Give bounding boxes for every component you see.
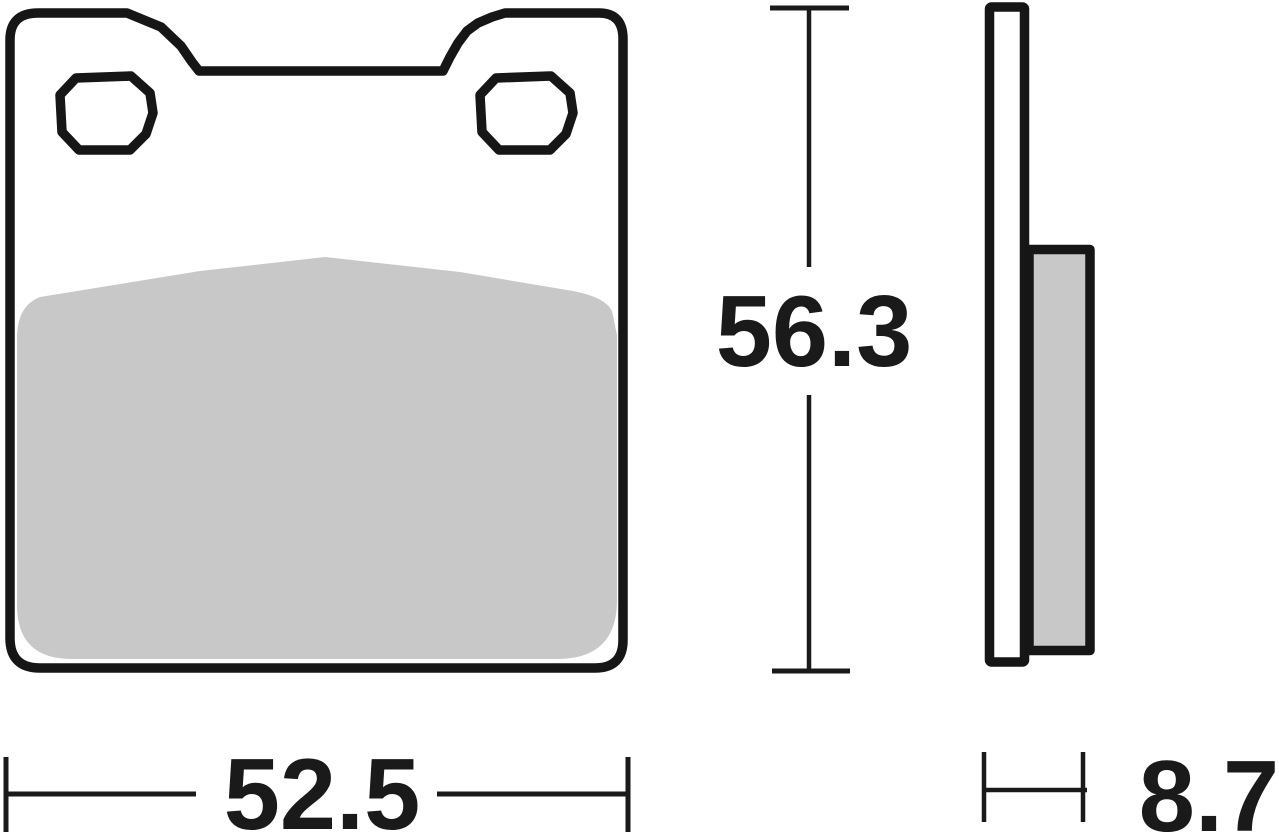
width-dimension-value: 52.5 — [224, 739, 421, 837]
thickness-dimension-value: 8.7 — [1139, 741, 1279, 837]
height-dimension-value: 56.3 — [716, 276, 913, 388]
thickness-dimension: 8.7 — [984, 741, 1279, 837]
width-dimension: 52.5 — [5, 739, 628, 837]
technical-drawing-canvas: 52.5 56.3 8.7 — [0, 0, 1279, 837]
height-dimension: 56.3 — [716, 8, 913, 671]
side-backplate — [990, 7, 1025, 662]
brake-pad-side-view — [990, 7, 1091, 662]
front-right-hex-hole — [480, 76, 573, 150]
brake-pad-front-view — [10, 13, 623, 668]
front-friction-material — [17, 257, 617, 659]
side-friction-material — [1029, 250, 1090, 651]
front-left-hex-hole — [60, 76, 153, 150]
